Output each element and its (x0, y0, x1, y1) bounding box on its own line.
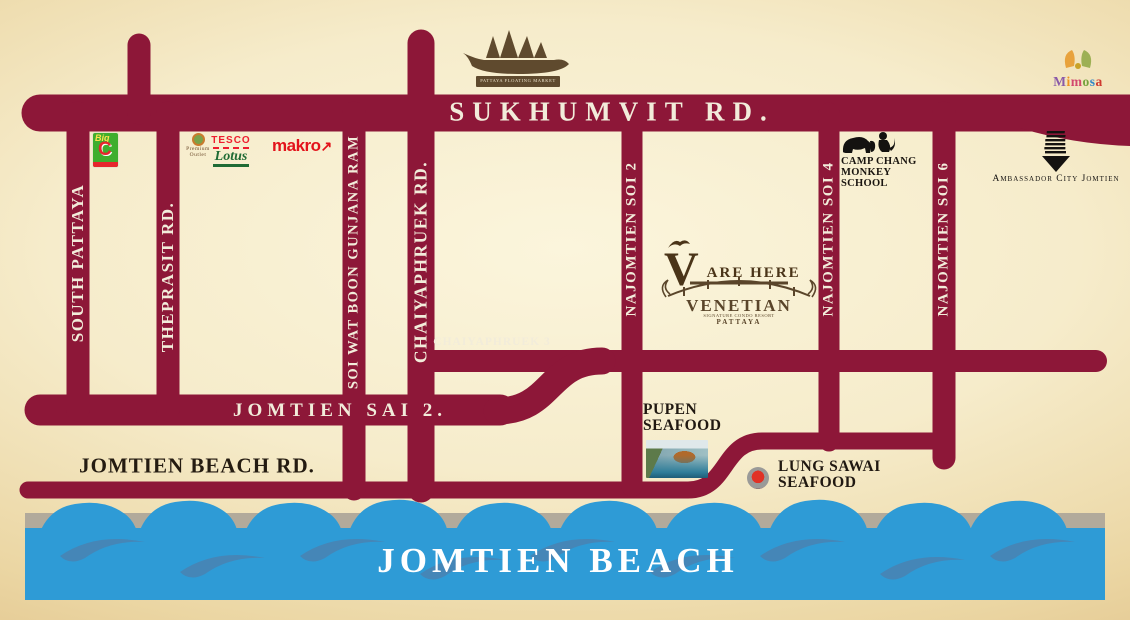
pupen-seafood: PUPEN SEAFOOD (643, 402, 721, 434)
jomtien-map: SUKHUMVIT RD. SOUTH PATTAYA THEPRASIT RD… (0, 0, 1130, 620)
lung-sawai-marker-icon (747, 467, 769, 489)
mimosa-wordmark: Mimosa (1038, 74, 1118, 90)
ambassador-city-jomtien: Ambassador City Jomtien (991, 130, 1121, 184)
bigc-logo: Big C (92, 132, 119, 168)
floating-market-logo: PATTAYA FLOATING MARKET (462, 26, 574, 96)
premium-outlet-icon (192, 133, 205, 146)
makro-logo: makro↗ (272, 136, 332, 156)
camp-chang: CAMP CHANG MONKEY SCHOOL (841, 128, 917, 189)
mimosa-butterfly-icon (1060, 46, 1096, 74)
lotus-bar (213, 164, 249, 167)
elephant-monkey-icon (841, 128, 897, 156)
ambassador-tower-icon (1039, 130, 1073, 174)
makro-arrow-icon: ↗ (321, 138, 332, 154)
lung-sawai-seafood: LUNG SAWAI SEAFOOD (778, 459, 881, 491)
bigc-banner (93, 162, 118, 167)
floating-market-boat-icon (462, 26, 574, 96)
tesco-lotus-logo: TESCO Lotus (209, 135, 253, 167)
venetian-bridge-icon (660, 274, 818, 298)
mimosa-logo: Mimosa (1038, 46, 1118, 90)
venetian-logo: VENETIAN SIGNATURE CONDO RESORT PATTAYA (660, 274, 818, 326)
pupen-photo (646, 440, 708, 478)
